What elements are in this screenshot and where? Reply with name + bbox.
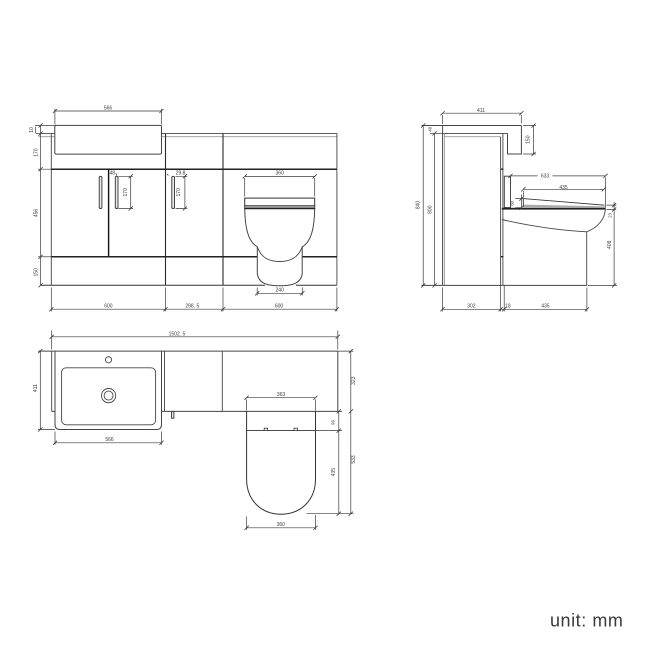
svg-text:456: 456 xyxy=(33,209,39,218)
svg-text:1502. 5: 1502. 5 xyxy=(169,332,186,338)
svg-text:unit: mm: unit: mm xyxy=(550,611,623,631)
svg-text:840: 840 xyxy=(416,201,422,210)
svg-text:566: 566 xyxy=(105,437,114,443)
svg-text:60: 60 xyxy=(510,200,515,205)
svg-text:435: 435 xyxy=(331,468,337,477)
svg-text:170: 170 xyxy=(176,188,182,197)
svg-text:363: 363 xyxy=(277,392,286,398)
svg-text:411: 411 xyxy=(477,108,485,114)
svg-text:435: 435 xyxy=(559,185,568,191)
svg-text:170: 170 xyxy=(33,148,39,157)
svg-text:150: 150 xyxy=(33,268,39,277)
svg-text:360: 360 xyxy=(277,522,286,528)
svg-text:298. 5: 298. 5 xyxy=(185,303,199,309)
svg-text:600: 600 xyxy=(275,303,284,309)
svg-text:600: 600 xyxy=(104,303,113,309)
svg-text:411: 411 xyxy=(33,384,39,392)
svg-text:40: 40 xyxy=(428,126,433,131)
svg-text:302: 302 xyxy=(467,304,476,310)
svg-text:800: 800 xyxy=(427,205,433,214)
svg-text:150: 150 xyxy=(526,135,532,144)
svg-text:533: 533 xyxy=(351,455,357,464)
svg-text:10: 10 xyxy=(29,127,35,133)
svg-text:48: 48 xyxy=(110,170,116,176)
svg-text:18: 18 xyxy=(505,304,511,310)
svg-text:96: 96 xyxy=(331,420,336,425)
svg-text:23: 23 xyxy=(608,212,613,217)
svg-text:633: 633 xyxy=(541,174,550,180)
svg-text:29.8: 29.8 xyxy=(176,171,186,177)
svg-text:360: 360 xyxy=(276,171,285,177)
svg-text:435: 435 xyxy=(541,304,550,310)
svg-text:408: 408 xyxy=(607,240,613,249)
svg-text:566: 566 xyxy=(104,105,113,111)
svg-text:170: 170 xyxy=(123,188,129,197)
svg-text:323: 323 xyxy=(351,376,357,385)
svg-text:240: 240 xyxy=(276,288,285,294)
